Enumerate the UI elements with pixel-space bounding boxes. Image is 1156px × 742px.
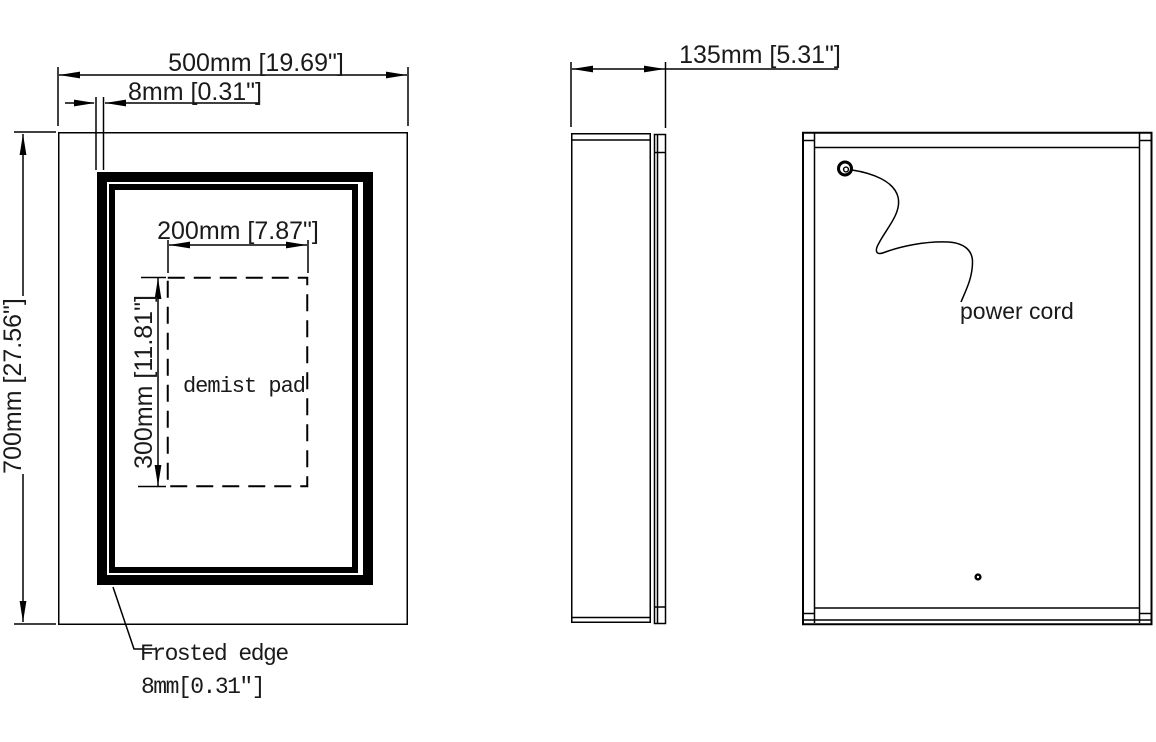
frosted-edge-leader-line bbox=[113, 587, 156, 649]
technical-drawing-canvas: demist pad 500mm [19.69"] 8mm [0.31"] 70… bbox=[0, 0, 1156, 742]
power-cord-label: power cord bbox=[960, 298, 1074, 324]
side-cabinet-body bbox=[572, 134, 651, 623]
front-view: demist pad bbox=[59, 133, 408, 625]
pad-height-dimension-label: 300mm [11.81"] bbox=[130, 295, 158, 469]
front-frosted-edge-dimension: 8mm [0.31"] bbox=[65, 78, 262, 170]
side-view bbox=[572, 134, 666, 624]
screw-hole-center bbox=[977, 576, 979, 578]
front-height-dimension-label: 700mm [27.56"] bbox=[0, 298, 27, 474]
side-depth-dimension-label: 135mm [5.31"] bbox=[679, 41, 841, 69]
power-cord-line bbox=[852, 170, 973, 302]
front-frosted-edge-dimension-label: 8mm [0.31"] bbox=[128, 78, 262, 106]
back-view: power cord bbox=[803, 133, 1152, 625]
back-cabinet-outline bbox=[803, 133, 1152, 625]
frosted-edge-callout: Frosted edge 8mm[0.31″] bbox=[113, 587, 288, 700]
cord-grommet-icon bbox=[839, 162, 852, 175]
front-width-dimension-label: 500mm [19.69"] bbox=[168, 49, 344, 77]
pad-height-dimension: 300mm [11.81"] bbox=[130, 278, 166, 487]
cord-grommet-hole-icon bbox=[844, 167, 849, 172]
frosted-edge-callout-line1: Frosted edge bbox=[140, 641, 288, 667]
demist-pad-label: demist pad bbox=[183, 374, 305, 399]
pad-width-dimension: 200mm [7.87"] bbox=[157, 217, 319, 273]
pad-width-dimension-label: 200mm [7.87"] bbox=[157, 217, 319, 245]
side-depth-dimension: 135mm [5.31"] bbox=[571, 41, 841, 128]
mirror-cabinet-drawing: demist pad 500mm [19.69"] 8mm [0.31"] 70… bbox=[0, 0, 1156, 742]
frosted-edge-callout-line2: 8mm[0.31″] bbox=[141, 674, 264, 700]
side-mirror-door bbox=[655, 135, 666, 624]
front-height-dimension: 700mm [27.56"] bbox=[0, 132, 56, 624]
